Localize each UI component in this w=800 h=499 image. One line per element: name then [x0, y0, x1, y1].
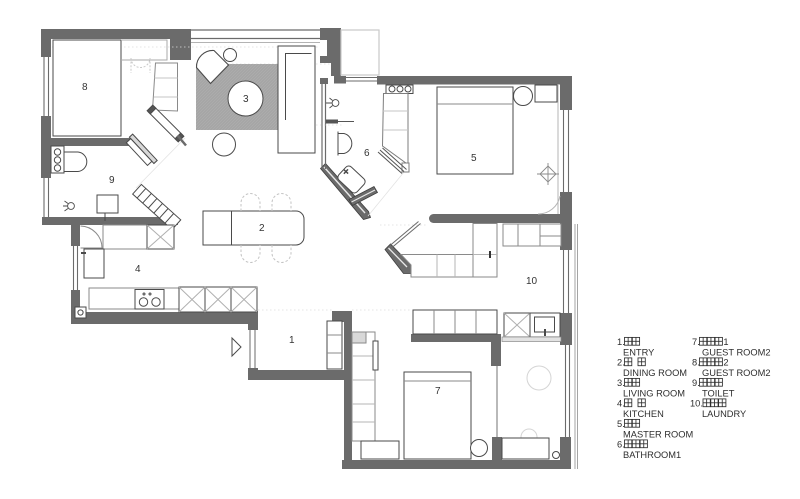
svg-text:4: 4 — [135, 264, 141, 275]
svg-text:7: 7 — [435, 386, 441, 397]
svg-text:5: 5 — [471, 153, 477, 164]
svg-text:2.: 2. — [617, 358, 625, 368]
svg-text:GUEST ROOM2: GUEST ROOM2 — [702, 368, 771, 378]
svg-text:8: 8 — [82, 82, 88, 93]
svg-text:2: 2 — [723, 358, 728, 368]
svg-text:9.: 9. — [692, 378, 700, 388]
svg-text:3: 3 — [243, 94, 249, 105]
svg-text:BATHROOM1: BATHROOM1 — [623, 450, 681, 460]
svg-text:4.: 4. — [617, 399, 625, 409]
svg-text:1.: 1. — [617, 337, 625, 347]
svg-text:LAUNDRY: LAUNDRY — [702, 409, 746, 419]
svg-text:ENTRY: ENTRY — [623, 348, 654, 358]
svg-text:6.: 6. — [617, 440, 625, 450]
svg-text:DINING ROOM: DINING ROOM — [623, 368, 687, 378]
svg-text:KITCHEN: KITCHEN — [623, 409, 664, 419]
svg-text:GUEST ROOM2: GUEST ROOM2 — [702, 348, 771, 358]
svg-text:5.: 5. — [617, 419, 625, 429]
svg-text:3.: 3. — [617, 378, 625, 388]
svg-text:LIVING ROOM: LIVING ROOM — [623, 389, 685, 399]
svg-text:10: 10 — [526, 276, 538, 287]
svg-text:1: 1 — [289, 335, 295, 346]
svg-text:MASTER ROOM: MASTER ROOM — [623, 430, 693, 440]
svg-text:8.: 8. — [692, 358, 700, 368]
svg-text:6: 6 — [364, 148, 370, 159]
svg-text:TOILET: TOILET — [702, 389, 735, 399]
svg-text:10.: 10. — [690, 399, 703, 409]
svg-text:1: 1 — [723, 337, 728, 347]
svg-text:9: 9 — [109, 175, 115, 186]
svg-text:2: 2 — [259, 223, 265, 234]
svg-text:7.: 7. — [692, 337, 700, 347]
